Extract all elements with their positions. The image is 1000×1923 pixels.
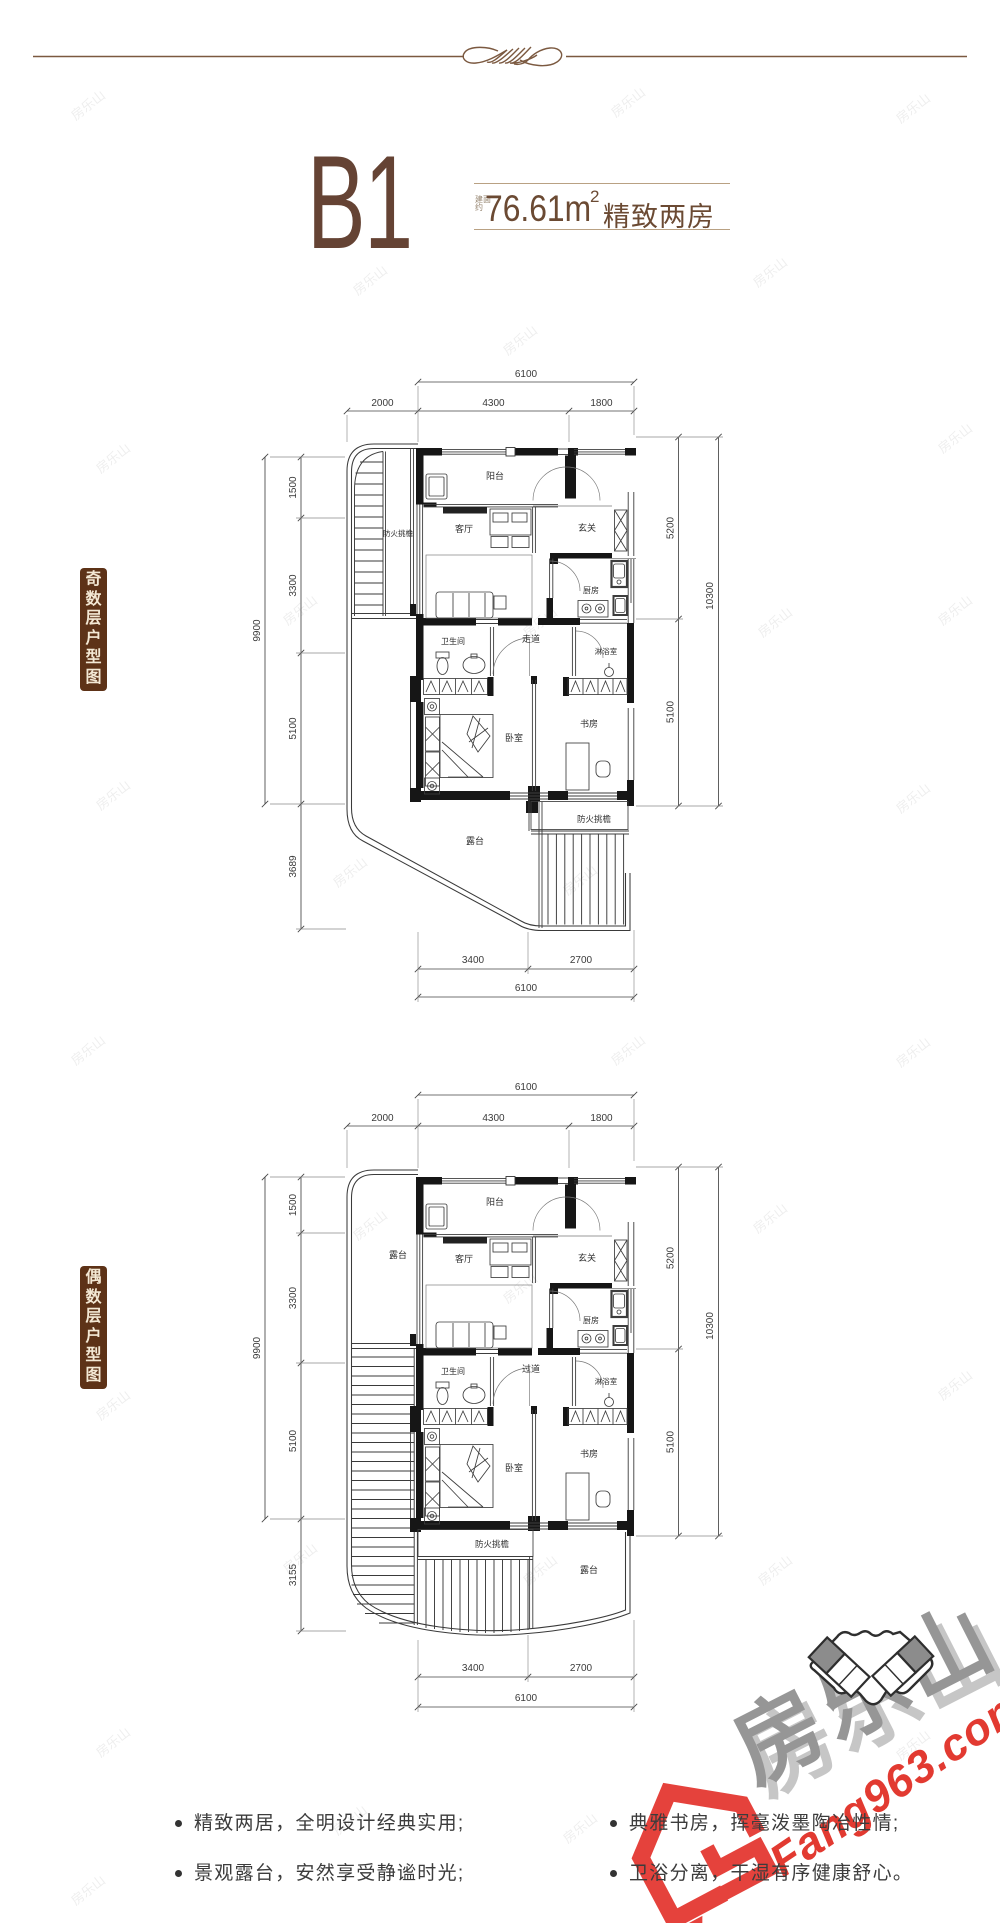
svg-text:1500: 1500 xyxy=(288,1193,299,1216)
svg-text:2700: 2700 xyxy=(570,1663,593,1674)
svg-text:5100: 5100 xyxy=(666,1430,677,1453)
svg-text:玄关: 玄关 xyxy=(578,1252,596,1263)
svg-text:6100: 6100 xyxy=(515,1693,538,1704)
svg-text:6100: 6100 xyxy=(515,1082,538,1093)
svg-text:书房: 书房 xyxy=(580,718,598,729)
svg-text:卧室: 卧室 xyxy=(505,732,523,743)
svg-text:9900: 9900 xyxy=(252,619,263,642)
svg-text:过道: 过道 xyxy=(522,1363,540,1374)
svg-text:客厅: 客厅 xyxy=(455,1253,473,1264)
svg-text:3689: 3689 xyxy=(288,855,299,878)
svg-text:玄关: 玄关 xyxy=(578,522,596,533)
svg-text:防火挑檐: 防火挑檐 xyxy=(383,528,413,538)
svg-text:露台: 露台 xyxy=(580,1564,598,1575)
svg-text:5200: 5200 xyxy=(666,516,677,539)
svg-text:1500: 1500 xyxy=(288,476,299,499)
svg-text:露台: 露台 xyxy=(466,835,484,846)
svg-text:阳台: 阳台 xyxy=(486,1196,504,1207)
svg-text:3155: 3155 xyxy=(288,1563,299,1586)
svg-text:卫生间: 卫生间 xyxy=(441,636,465,646)
svg-text:卧室: 卧室 xyxy=(505,1462,523,1473)
svg-text:3400: 3400 xyxy=(462,1663,485,1674)
svg-text:书房: 书房 xyxy=(580,1448,598,1459)
svg-text:2700: 2700 xyxy=(570,955,593,966)
svg-text:5100: 5100 xyxy=(288,1429,299,1452)
svg-text:卫生间: 卫生间 xyxy=(441,1366,465,1376)
svg-text:4300: 4300 xyxy=(482,1113,505,1124)
svg-text:1800: 1800 xyxy=(590,1113,613,1124)
svg-text:3400: 3400 xyxy=(462,955,485,966)
svg-text:5100: 5100 xyxy=(666,700,677,723)
svg-text:4300: 4300 xyxy=(482,398,505,409)
svg-text:防火挑檐: 防火挑檐 xyxy=(475,1539,510,1549)
svg-text:阳台: 阳台 xyxy=(486,470,504,481)
svg-text:淋浴室: 淋浴室 xyxy=(595,1376,618,1386)
svg-text:露台: 露台 xyxy=(389,1249,407,1260)
svg-text:6100: 6100 xyxy=(515,983,538,994)
svg-text:5100: 5100 xyxy=(288,717,299,740)
svg-text:10300: 10300 xyxy=(705,582,716,610)
svg-text:2000: 2000 xyxy=(371,1113,394,1124)
svg-text:5200: 5200 xyxy=(666,1246,677,1269)
svg-text:9900: 9900 xyxy=(252,1336,263,1359)
svg-text:客厅: 客厅 xyxy=(455,523,473,534)
svg-text:淋浴室: 淋浴室 xyxy=(595,646,618,656)
svg-text:厨房: 厨房 xyxy=(583,1315,599,1325)
svg-text:2000: 2000 xyxy=(371,398,394,409)
svg-text:6100: 6100 xyxy=(515,369,538,380)
svg-text:3300: 3300 xyxy=(288,1286,299,1309)
svg-text:1800: 1800 xyxy=(590,398,613,409)
svg-text:厨房: 厨房 xyxy=(583,585,599,595)
svg-text:走道: 走道 xyxy=(522,633,540,644)
svg-text:防火挑檐: 防火挑檐 xyxy=(577,814,612,824)
svg-text:3300: 3300 xyxy=(288,574,299,597)
svg-text:10300: 10300 xyxy=(705,1312,716,1340)
